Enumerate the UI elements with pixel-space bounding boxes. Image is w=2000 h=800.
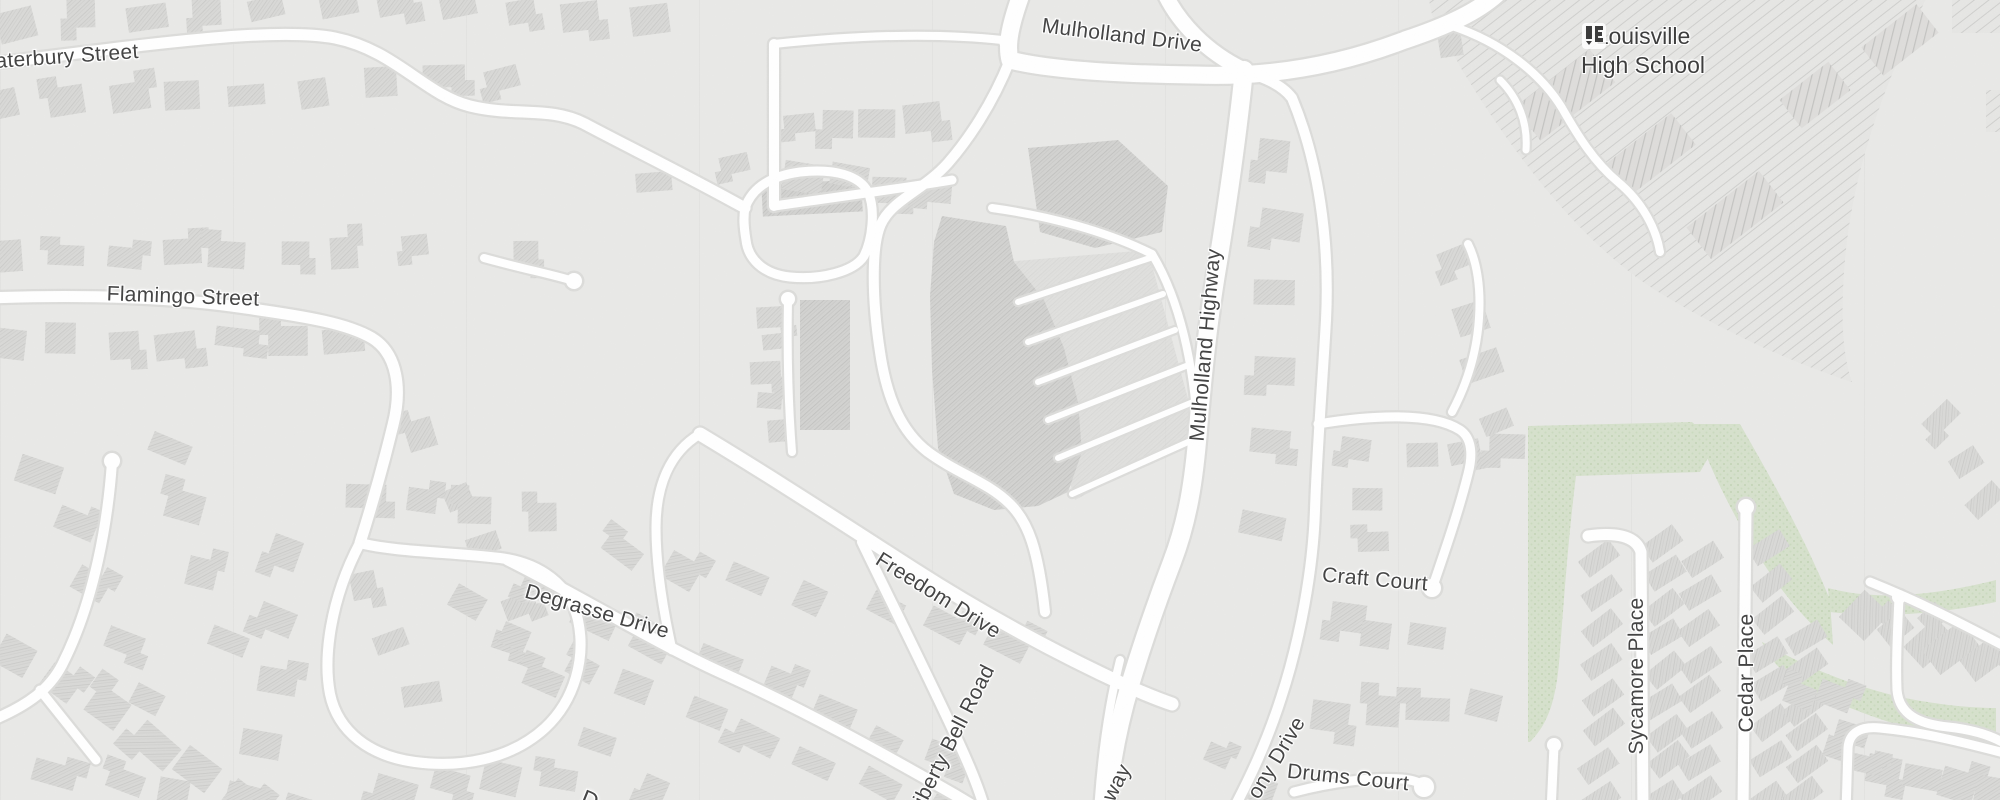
school-icon: [1581, 22, 1607, 50]
poi-name-line2: High School: [1581, 51, 1705, 80]
map-canvas: [0, 0, 2000, 800]
poi-louisville-high-school[interactable]: Louisville High School: [1581, 22, 1705, 80]
noise-overlay: [0, 0, 2000, 800]
map-viewport[interactable]: aterbury StreetFlamingo StreetMulholland…: [0, 0, 2000, 800]
poi-name-line1: Louisville: [1596, 22, 1691, 51]
